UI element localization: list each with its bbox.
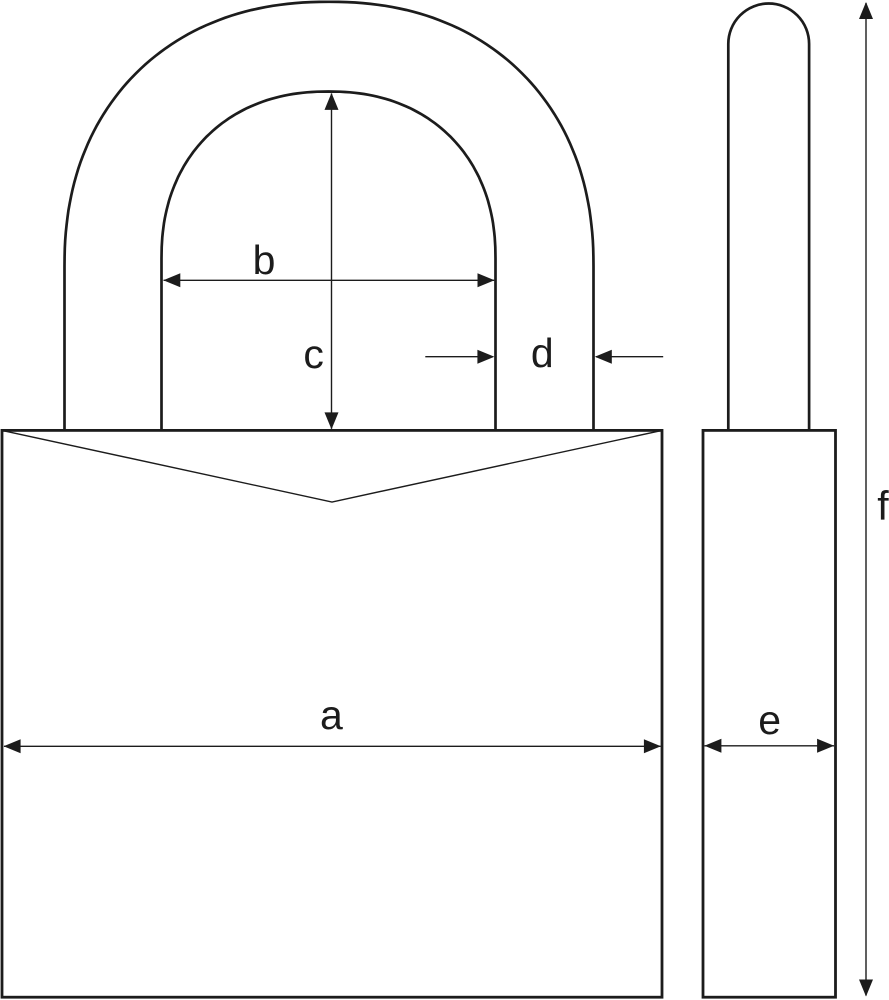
- svg-text:a: a: [320, 692, 343, 738]
- svg-text:e: e: [758, 697, 781, 743]
- svg-text:c: c: [303, 331, 324, 377]
- svg-text:d: d: [531, 330, 554, 376]
- svg-text:f: f: [877, 483, 889, 529]
- svg-text:b: b: [253, 237, 276, 283]
